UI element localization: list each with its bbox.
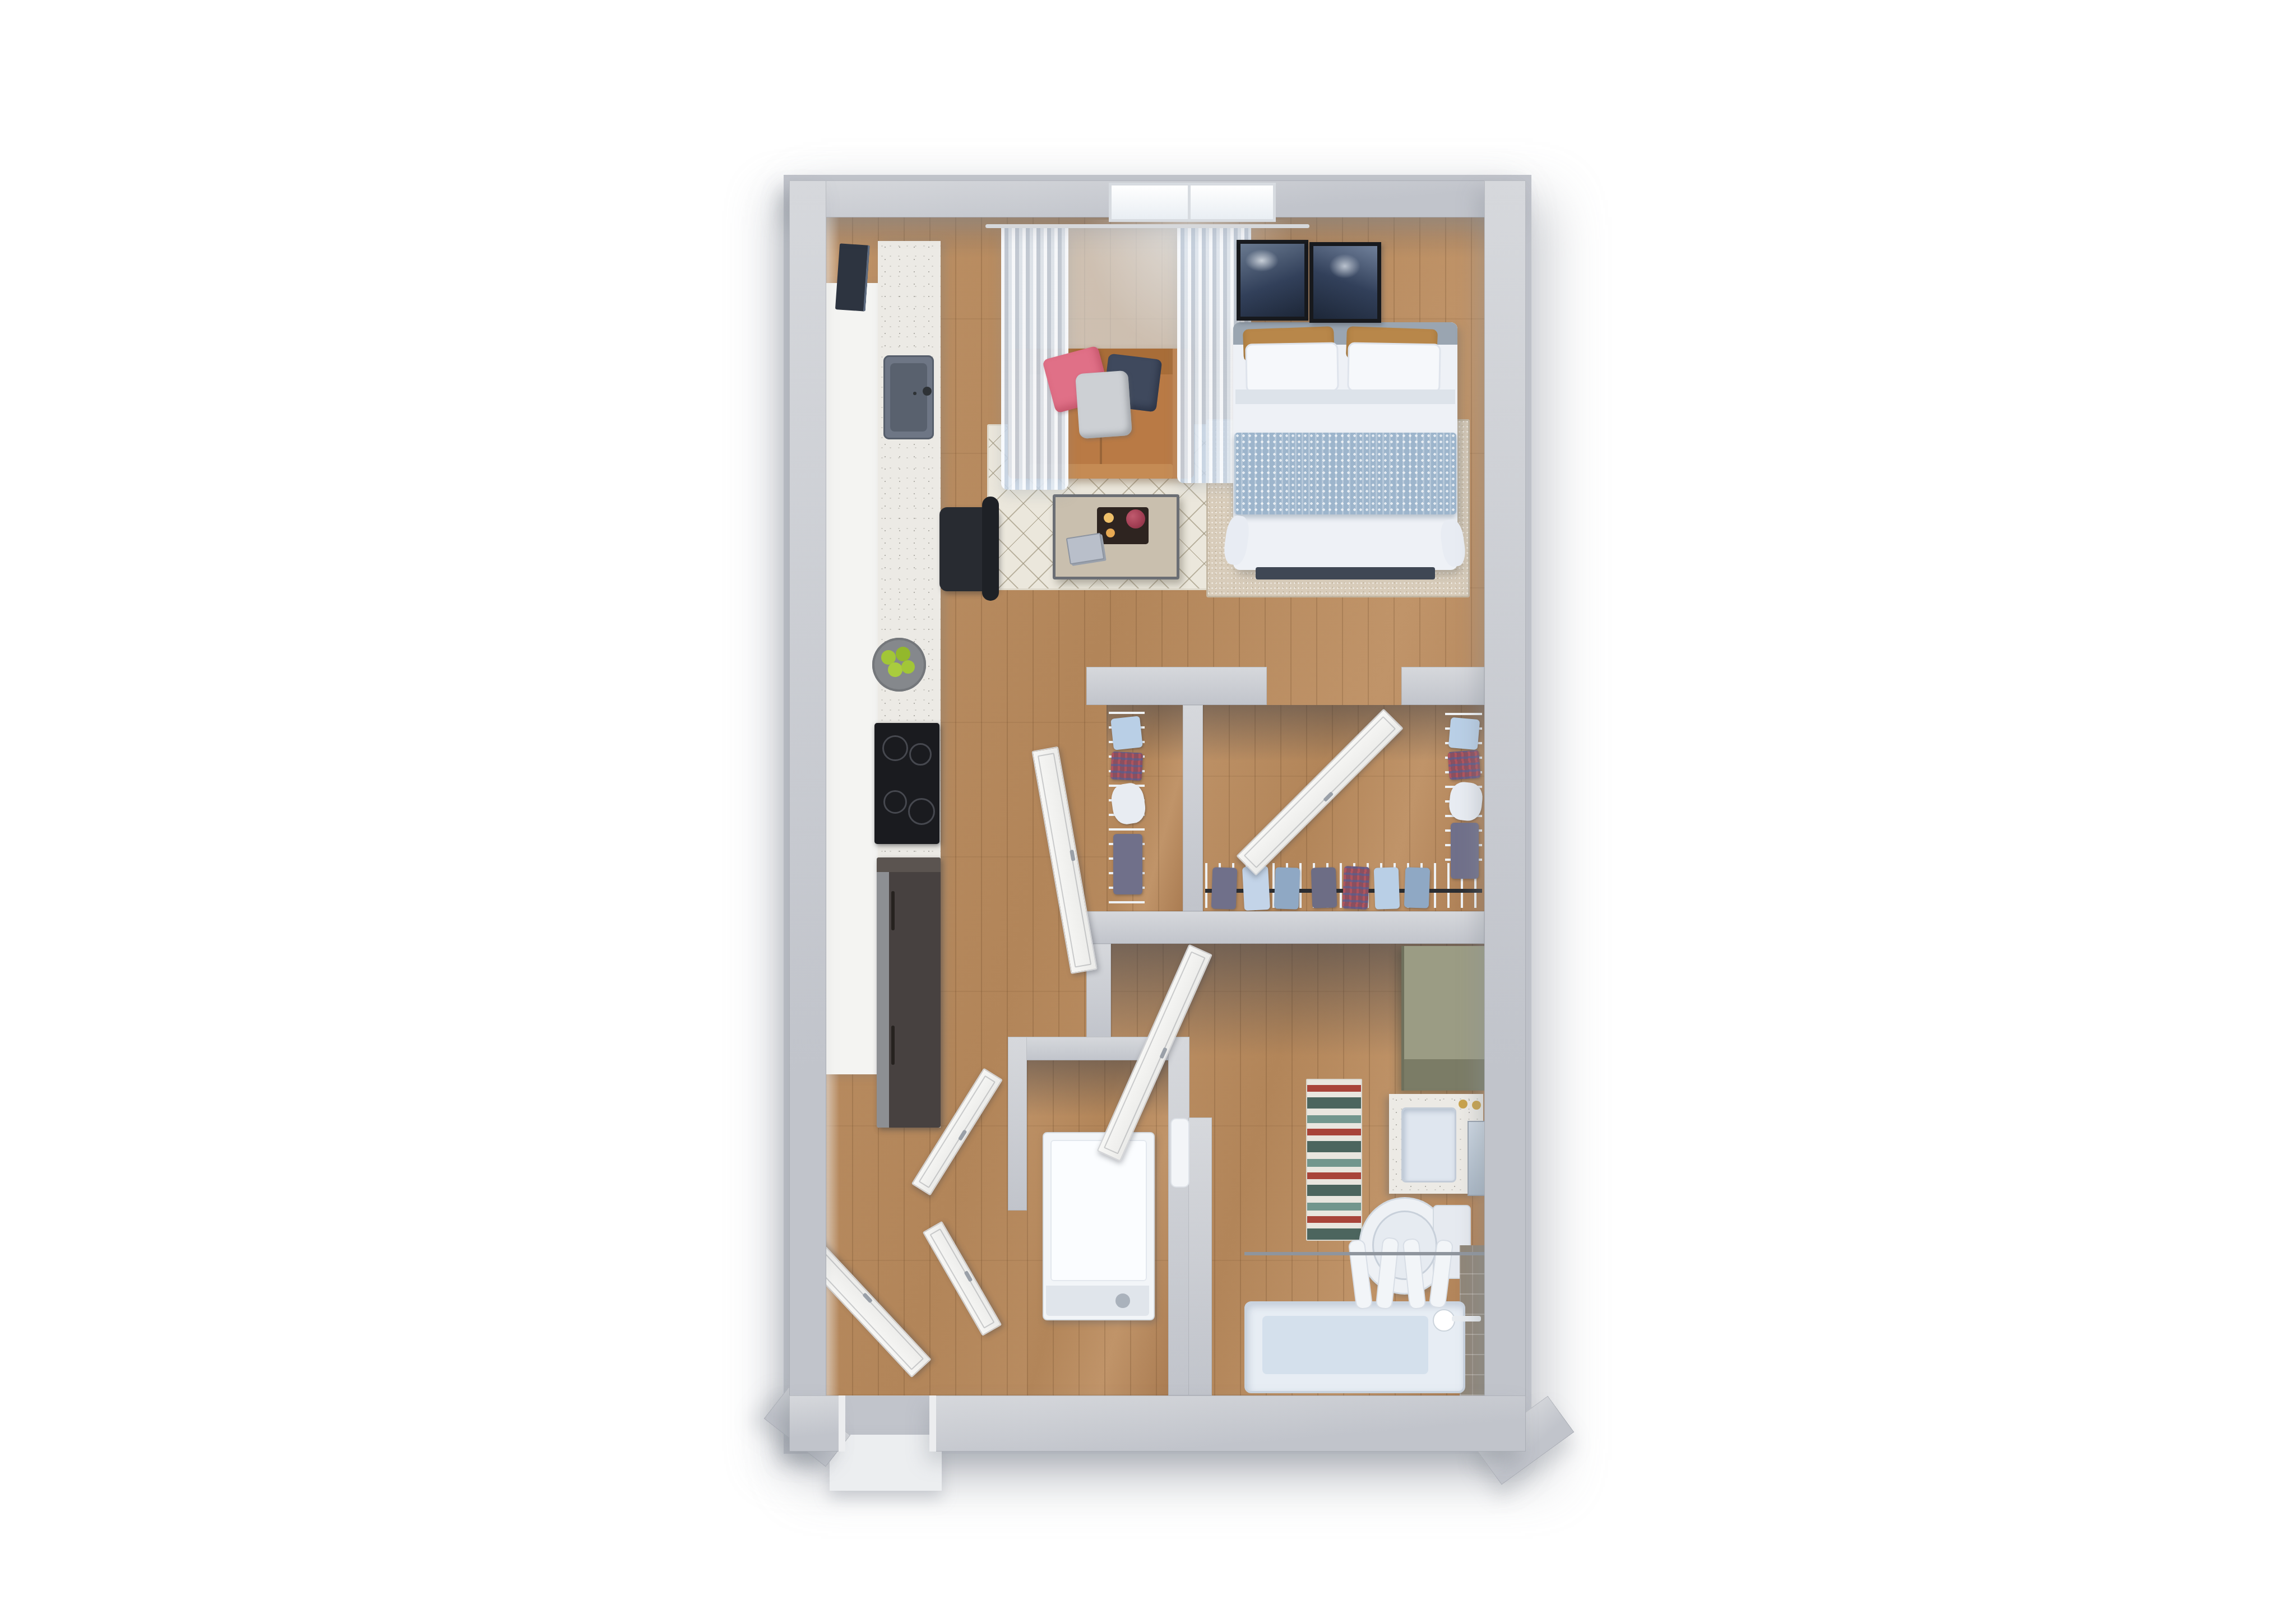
window-mullion <box>1188 186 1191 219</box>
sheet-band <box>1235 389 1455 404</box>
hanging-garment <box>1311 867 1337 908</box>
outer-wall-left <box>789 180 826 1452</box>
apple <box>901 660 915 674</box>
hanging-garment <box>1404 867 1430 908</box>
entry-stoop <box>830 1435 942 1491</box>
apple <box>888 662 902 677</box>
shower-rod <box>1244 1252 1484 1255</box>
closet-top-wall-right <box>1401 667 1484 705</box>
burner <box>883 790 907 814</box>
decor-tray <box>1097 507 1149 544</box>
white-pillow-right <box>1347 342 1441 393</box>
hanging-clothes-gray <box>1451 823 1479 879</box>
hanging-garment <box>1342 866 1370 910</box>
floorplan-stage <box>0 0 2296 1623</box>
linen-cabinet-front <box>1404 1059 1486 1091</box>
art-cloud <box>1329 254 1360 279</box>
wall-art-frame-1 <box>1237 240 1308 321</box>
sink-basin <box>890 363 927 432</box>
footboard-bench <box>1256 567 1435 579</box>
outer-wall-bottom-right <box>934 1395 1526 1452</box>
burner <box>908 798 935 825</box>
white-cabinet-run <box>826 283 879 1074</box>
coffee-table <box>1053 494 1179 579</box>
sink-faucet <box>923 387 932 396</box>
fruit-plate <box>872 638 926 692</box>
entry-jamb-left <box>839 1395 845 1452</box>
hall-towel <box>1170 1118 1189 1188</box>
plaid-shirt <box>1110 752 1144 781</box>
wall-art-frame-2 <box>1309 242 1381 323</box>
hanging-garment <box>1274 867 1300 909</box>
art-cloud <box>1245 249 1279 272</box>
folded-clothes-blue <box>1110 716 1143 750</box>
striped-runner-rug <box>1306 1079 1362 1241</box>
counter-chair-back <box>982 497 999 601</box>
linen-cabinet <box>1401 946 1486 1091</box>
gray-throw <box>1075 370 1132 439</box>
candle <box>1104 513 1114 523</box>
refrigerator <box>877 857 941 1128</box>
washer-dryer <box>1043 1132 1155 1320</box>
apple <box>896 647 910 661</box>
queen-bed <box>1233 322 1457 570</box>
washer-top <box>1050 1140 1147 1281</box>
washer-dial <box>1115 1293 1130 1308</box>
vanity-sink <box>1401 1107 1456 1183</box>
folded-clothes-blue <box>1448 717 1480 750</box>
entry-jamb-right <box>929 1395 936 1452</box>
white-pillow-left <box>1245 342 1339 393</box>
washer-panel <box>1046 1286 1149 1316</box>
closet-divider-wall <box>1183 705 1203 911</box>
candle <box>1106 528 1115 537</box>
tub-faucet-spout <box>1452 1316 1481 1321</box>
curtain-rod <box>985 224 1309 228</box>
outer-wall-bottom-left <box>789 1395 841 1452</box>
closet-bottom-wall <box>1086 911 1484 944</box>
closet-top-wall-left <box>1086 667 1267 705</box>
bathtub-basin <box>1262 1316 1428 1374</box>
books <box>1066 532 1105 564</box>
laundry-left-wall <box>1008 1037 1027 1211</box>
outer-wall-right <box>1484 180 1526 1452</box>
fridge-handle <box>891 891 895 930</box>
mirror <box>1468 1121 1485 1196</box>
hanging-clothes-gray <box>1113 834 1142 894</box>
plaid-shirt <box>1447 750 1480 780</box>
blue-quilt <box>1234 433 1456 514</box>
flowers <box>1126 509 1145 528</box>
burner <box>909 743 932 766</box>
fridge-handle <box>891 1026 895 1065</box>
hanging-garment <box>1374 867 1400 909</box>
burner <box>882 735 908 761</box>
laundry-right-wall <box>1168 1037 1189 1395</box>
fridge-top <box>877 857 941 872</box>
window <box>1109 183 1276 222</box>
bathroom-left-wall <box>1188 1117 1212 1395</box>
tv <box>835 243 870 311</box>
hanging-garment <box>1211 867 1238 909</box>
cooktop <box>874 723 939 844</box>
gold-faucet <box>1459 1100 1468 1109</box>
